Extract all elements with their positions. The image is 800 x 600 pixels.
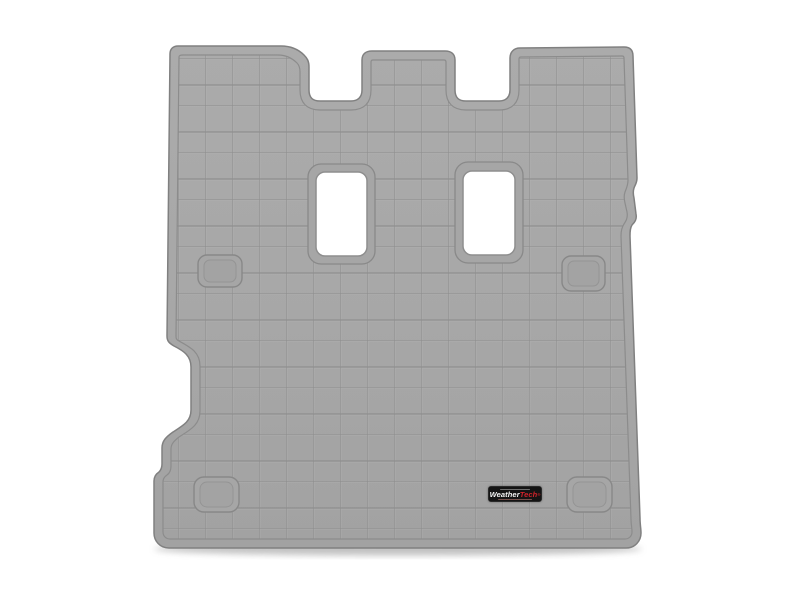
tread-grid-field (163, 55, 632, 539)
badge-wordmark: WeatherTech® (490, 491, 541, 498)
product-photo-canvas: WeatherTech® (0, 0, 800, 600)
badge-brand-weather: Weather (490, 490, 520, 499)
recess-pad-bottom-left (194, 477, 239, 512)
recess-pad-mid-right (562, 256, 605, 291)
badge-registered-mark: ® (537, 492, 540, 497)
cargo-liner-illustration (0, 0, 800, 600)
weathertech-badge: WeatherTech® (488, 486, 542, 502)
badge-brand-tech: Tech (520, 490, 538, 499)
recess-pad-mid-left (198, 255, 242, 287)
seat-cutout-right (463, 171, 515, 255)
recess-pad-bottom-right (567, 477, 612, 512)
seat-cutout-left (316, 172, 367, 256)
badge-microtext-bottom (498, 499, 531, 500)
